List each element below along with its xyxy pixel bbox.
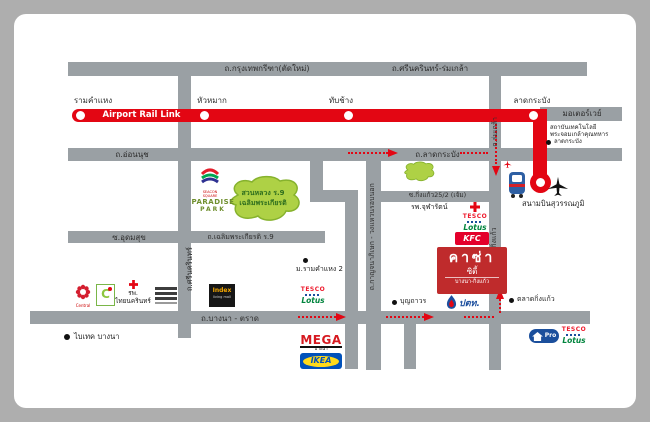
road-label-krungthep-kreetha: ถ.กรุงเทพกรีฑา(ตัดใหม่) bbox=[192, 64, 342, 74]
big-c-logo: C bbox=[96, 284, 115, 306]
index-sub-label: living mall bbox=[209, 295, 235, 299]
bitec-dot bbox=[64, 334, 70, 340]
seacon-s-icon bbox=[200, 168, 220, 186]
road-label-soi-kingkaew-25-2: ซ.กิ่งแก้ว25/2 (เจ้ม) bbox=[380, 192, 495, 200]
road-label-bangna-trad: ถ.บางนา - ตราด bbox=[185, 314, 275, 324]
stripe-caption-bar bbox=[155, 302, 177, 304]
tesco-lotus-logo-kingkaew: TESCO Lotus bbox=[459, 214, 491, 232]
central-label: Central bbox=[73, 304, 93, 308]
road-label-chalermprakiat: ถ.เฉลิมพระเกียรติ ร.9 bbox=[188, 233, 293, 241]
striped-mall-logo bbox=[155, 287, 177, 306]
road-label-kanchanapisek: ถ.กาญจนาภิเษก - วงแหวนรอบนอก bbox=[369, 162, 377, 312]
seacon-square-logo: SEACON SQUARE bbox=[196, 168, 224, 198]
seacon-square-label: SEACON SQUARE bbox=[196, 190, 224, 198]
mini-red-plane-icon bbox=[503, 160, 512, 169]
road-stub-south-2 bbox=[404, 324, 416, 369]
project-name: คาซ่า bbox=[437, 250, 507, 267]
road-stub-south-1 bbox=[345, 324, 358, 369]
airplane-icon bbox=[547, 175, 569, 199]
ikea-label: IKEA bbox=[311, 357, 332, 365]
red-cross-icon-thainakarin bbox=[129, 280, 138, 289]
ikea-oval: IKEA bbox=[303, 356, 339, 367]
bitec-label: ไบเทค บางนา bbox=[74, 332, 119, 341]
stripe-bar bbox=[155, 297, 177, 300]
airport-label: สนามบินสุวรรณภูมิ bbox=[522, 199, 617, 208]
ram2-dot bbox=[303, 258, 308, 263]
boonthavorn-label: บุญถาวร bbox=[400, 297, 426, 305]
mega-sub-label: บางนา bbox=[298, 348, 344, 353]
stripe-bar bbox=[155, 287, 177, 290]
road-label-srinakarin-romklao: ถ.ศรีนครินทร์-ร่มเกล้า bbox=[355, 64, 505, 74]
park-name-line1: สวนหลวง ร.9 bbox=[228, 189, 298, 198]
casa-city-project-box: คาซ่า ซิตี้ บางนา-กิ่งแก้ว bbox=[437, 247, 507, 294]
route-arrow-bangna-2 bbox=[424, 313, 434, 321]
mega-label: MEGA bbox=[298, 334, 344, 346]
park-name-line2: เฉลิมพระเกียรติ bbox=[228, 199, 298, 208]
tesco-label: TESCO bbox=[557, 327, 591, 333]
project-area: บางนา-กิ่งแก้ว bbox=[445, 277, 499, 286]
road-label-onnut: ถ.อ่อนนุช bbox=[97, 150, 167, 160]
kmitl-dot bbox=[546, 140, 551, 145]
tesco-lotus-logo-bangna: TESCO Lotus bbox=[296, 287, 330, 305]
kfc-logo: KFC bbox=[455, 232, 489, 245]
chularat-hospital-label: รพ.จุฬารัตน์ bbox=[411, 203, 448, 211]
station-label-ramkhamhaeng: รามคำแหง bbox=[58, 96, 128, 106]
kingkaew-market-label: ตลาดกิ่งแก้ว bbox=[517, 295, 555, 303]
route-dash-latkrabang bbox=[348, 152, 388, 154]
ptt-logo: ปตท. bbox=[446, 295, 480, 310]
stripe-bar bbox=[155, 292, 177, 295]
road-label-srinakarin-vertical: ถ.ศรีนครินทร์ bbox=[186, 219, 194, 319]
lotus-label: Lotus bbox=[296, 297, 330, 305]
ptt-label: ปตท. bbox=[459, 296, 480, 310]
homepro-label: Pro bbox=[545, 333, 556, 339]
tesco-lotus-logo-east: TESCO Lotus bbox=[557, 327, 591, 345]
station-label-tabchang: ทับช้าง bbox=[308, 96, 374, 106]
index-living-mall-logo: Index living mall bbox=[209, 284, 235, 307]
route-dash-bangna-2 bbox=[386, 316, 424, 318]
route-dash-bangna-1 bbox=[298, 316, 336, 318]
route-dash-bangna-3 bbox=[464, 316, 494, 318]
map-screenshot: Airport Rail Link รามคำแหง หัวหมาก ทับช้… bbox=[0, 0, 650, 422]
red-cross-icon-chularat bbox=[470, 202, 480, 212]
route-arrow-latkrabang bbox=[388, 149, 398, 157]
kingkaew-market-dot bbox=[509, 298, 514, 303]
ptt-flame-icon bbox=[446, 295, 457, 310]
tesco-label: TESCO bbox=[459, 214, 491, 220]
station-dot-ramkhamhaeng bbox=[76, 111, 85, 120]
train-icon bbox=[506, 170, 528, 200]
lotus-label: Lotus bbox=[459, 224, 491, 232]
road-label-motorway: มอเตอร์เวย์ bbox=[547, 109, 617, 119]
tesco-label: TESCO bbox=[296, 287, 330, 293]
route-dash-kingkaew-up bbox=[499, 299, 501, 313]
station-dot-tabchang bbox=[344, 111, 353, 120]
park-label: PARK bbox=[191, 207, 235, 214]
lotus-label: Lotus bbox=[557, 337, 591, 345]
index-label: Index bbox=[209, 287, 235, 295]
road-jog-vertical-lower bbox=[345, 190, 358, 312]
road-label-romklao: ถ.ร่มเกล้า bbox=[492, 92, 500, 172]
ram2-label: ม.รามคำแหง 2 bbox=[296, 265, 343, 273]
green-area-blob bbox=[400, 158, 436, 186]
airport-rail-link-label: Airport Rail Link bbox=[94, 110, 189, 120]
station-label-latkrabang: ลาดกระบัง bbox=[499, 96, 565, 106]
big-c-red-dot bbox=[108, 287, 112, 291]
ikea-logo: IKEA bbox=[300, 353, 342, 369]
route-arrow-bangna-1 bbox=[336, 313, 346, 321]
kmitl-label-line3: ลาดกระบัง bbox=[554, 138, 582, 145]
project-type: ซิตี้ bbox=[437, 267, 507, 276]
station-dot-huamak bbox=[200, 111, 209, 120]
homepro-logo: Pro bbox=[529, 329, 559, 343]
airport-terminal-dot bbox=[536, 178, 545, 187]
road-label-udomsuk: ซ.อุดมสุข bbox=[96, 233, 162, 243]
paradise-park-logo: PARADISE PARK bbox=[191, 199, 235, 213]
boonthavorn-dot bbox=[392, 300, 397, 305]
station-label-huamak: หัวหมาก bbox=[179, 96, 245, 106]
station-dot-latkrabang bbox=[529, 111, 538, 120]
house-icon bbox=[532, 332, 543, 341]
central-logo: Central bbox=[73, 284, 93, 308]
mega-bangna-logo: MEGA บางนา bbox=[298, 334, 344, 352]
central-flower-icon bbox=[75, 284, 91, 300]
